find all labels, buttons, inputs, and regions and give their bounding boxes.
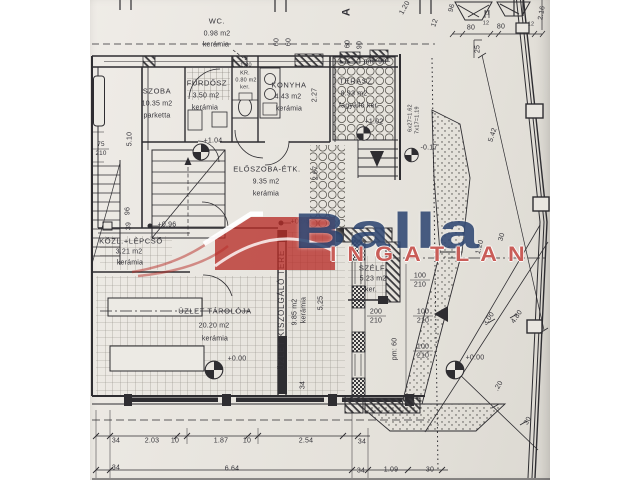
- label-rooms-10-name: SZÉLF.: [359, 264, 387, 272]
- label-rooms-1-name: SZOBA: [143, 87, 171, 95]
- label-dims-bottom-r1-0: 34: [112, 438, 120, 445]
- label-rooms-2-name: FÜRDŐSZ: [187, 79, 227, 87]
- label-rooms-8-area: 20.20 m2: [199, 323, 230, 330]
- label-levels-1: +1.02: [365, 119, 384, 126]
- label-rooms-10-area: 5.23 m2: [360, 276, 387, 283]
- label-rooms-9-floor: kerámia: [301, 297, 308, 323]
- label-rooms-8-name: ÜZLET TÁROLÓJA: [178, 307, 252, 315]
- label-dims-bottom-r1-1: 2.03: [145, 438, 159, 445]
- label-dims-upper-amark: A: [342, 8, 353, 16]
- label-dims-mid-v227: 2.27: [312, 88, 319, 102]
- label-dims-top-d12a: 12: [483, 21, 490, 27]
- label-dims-openings-3-1: 210: [417, 353, 429, 360]
- label-dims-upper-a60: 60: [274, 38, 281, 46]
- label-rooms-0-floor: kerámia: [203, 42, 229, 49]
- label-rooms-0-area: 0.98 m2: [204, 31, 231, 38]
- label-rooms-7-name: KÖZL.+LÉPCSŐ: [99, 237, 163, 245]
- label-rooms-9-name: ÜZLET KISZOLGÁLÓ TERE: [278, 250, 286, 370]
- label-levels-4: +0.96: [291, 219, 310, 226]
- label-dims-bottom-r1-3: 1.87: [214, 438, 228, 445]
- label-dims-mid-s2: 7x17=1.19: [415, 106, 421, 134]
- label-dims-mid-v525: 5,25: [318, 296, 325, 310]
- label-dims-bottom-r2-0: 34: [112, 465, 120, 472]
- label-dims-bottom-r1-2: 10: [171, 438, 179, 445]
- label-levels-0: +1.04: [204, 138, 223, 145]
- label-levels-2: -0.17: [421, 145, 438, 152]
- label-dims-right-v30a: 30: [498, 232, 507, 242]
- label-dims-left-v510: 5.10: [127, 132, 134, 146]
- label-rooms-4-area: 4.43 m2: [275, 94, 302, 101]
- label-rooms-6-name: ELŐSZOBA-ÉTK.: [233, 165, 300, 173]
- label-dims-bottom-r2-1: 6.64: [225, 466, 239, 473]
- label-rooms-4-floor: kerámia: [276, 106, 302, 113]
- label-rooms-3-area: 0.80 m2: [235, 78, 256, 84]
- label-rooms-6-area: 9.35 m2: [253, 179, 280, 186]
- label-rooms-9-area: 9.85 m2: [292, 299, 299, 326]
- label-rooms-7-area: 3.21 m2: [116, 249, 143, 256]
- label-rooms-1-area: 10.35 m2: [142, 101, 173, 108]
- label-rooms-7-floor: kerámia: [117, 260, 143, 267]
- label-rooms-3-floor: ker.: [240, 85, 250, 91]
- label-dims-openings-0-0: 100: [414, 273, 426, 280]
- label-dims-openings-1-1: 210: [370, 318, 382, 325]
- label-dims-left-v96: 96: [125, 207, 132, 215]
- label-dims-bottom-r1-4: 10: [243, 438, 251, 445]
- label-dims-top-v25: 25: [475, 45, 482, 53]
- label-dims-openings-1-0: 200: [370, 309, 382, 316]
- label-rooms-5-area: 8.93 m2: [341, 91, 368, 98]
- floorplan-labels: WC.0.98 m2kerámiaSZOBA10.35 m2parkettaFÜ…: [90, 0, 550, 480]
- label-dims-right-v542: 5.42: [487, 127, 498, 143]
- label-rooms-10-floor: ker.: [365, 287, 377, 294]
- label-dims-top-v96: 96: [448, 3, 457, 13]
- label-dims-top-v120: 1.20: [398, 0, 411, 16]
- label-dims-bottom-r2-3: 1.09: [384, 467, 398, 474]
- label-dims-upper-c60: 60: [345, 40, 352, 48]
- label-dims-upper-pm90: pm: 90: [364, 59, 387, 66]
- label-dims-bottom-r2-4: 30: [426, 467, 434, 474]
- label-dims-mid-v34: 34: [300, 381, 307, 389]
- label-rooms-8-floor: kerámia: [202, 336, 228, 343]
- label-dims-left-v39: 39: [126, 222, 133, 230]
- label-dims-bottom-r2-2: 34: [357, 468, 365, 475]
- label-dims-top-d12b: 12: [528, 22, 535, 28]
- screenshot: WC.0.98 m2kerámiaSZOBA10.35 m2parkettaFÜ…: [0, 0, 640, 480]
- label-dims-openings-2-0: 100: [417, 309, 429, 316]
- label-dims-left-w75: 75: [97, 142, 104, 148]
- label-dims-top-v11: 11: [484, 11, 490, 17]
- label-dims-right-v480: 4.80: [510, 309, 524, 325]
- label-rooms-1-floor: parketta: [144, 113, 171, 120]
- label-dims-top-v12: 12: [430, 18, 439, 28]
- label-dims-openings-2-1: 210: [417, 318, 429, 325]
- label-dims-top-b80: 80: [497, 24, 505, 31]
- label-dims-top-a80: 80: [467, 25, 475, 32]
- label-dims-top-h216: 2.16: [537, 5, 546, 20]
- label-dims-bottom-r1-6: 34: [358, 439, 366, 446]
- label-dims-mid-s1: 6x27=1.62: [408, 104, 414, 132]
- label-rooms-5-floor: fagyálló ker.: [339, 103, 379, 110]
- label-levels-3: +0.96: [158, 222, 177, 229]
- label-dims-right-v300: 3.00: [482, 311, 496, 327]
- label-rooms-0-name: WC.: [209, 17, 225, 25]
- label-dims-right-v120: 1.20: [475, 239, 485, 255]
- label-rooms-6-floor: kerámia: [253, 191, 279, 198]
- label-dims-upper-d90: 90: [357, 41, 364, 49]
- label-dims-right-v20: .20: [493, 380, 504, 392]
- label-levels-5: +0.00: [228, 356, 247, 363]
- label-dims-mid-v267: 2.67: [313, 166, 320, 180]
- label-levels-6: +0.00: [466, 355, 485, 362]
- label-dims-upper-b60: 60: [286, 38, 293, 46]
- label-dims-mid-pm60: pm: 60: [392, 338, 399, 361]
- label-rooms-2-area: 3.50 m2: [193, 93, 220, 100]
- label-rooms-4-name: KONYHA: [271, 81, 306, 89]
- label-rooms-5-name: TERASZ: [339, 77, 372, 85]
- label-rooms-3-note: 1.80: [240, 63, 252, 69]
- label-dims-right-v30b: 30: [523, 416, 533, 427]
- label-dims-openings-3-0: 100: [417, 344, 429, 351]
- label-dims-bottom-r1-5: 2.54: [299, 438, 313, 445]
- label-dims-openings-0-1: 210: [414, 282, 426, 289]
- floorplan-photo: WC.0.98 m2kerámiaSZOBA10.35 m2parkettaFÜ…: [90, 0, 550, 480]
- label-dims-left-w210: 210: [95, 151, 106, 157]
- label-rooms-2-floor: kerámia: [192, 105, 218, 112]
- label-rooms-3-name: KR.: [240, 71, 250, 77]
